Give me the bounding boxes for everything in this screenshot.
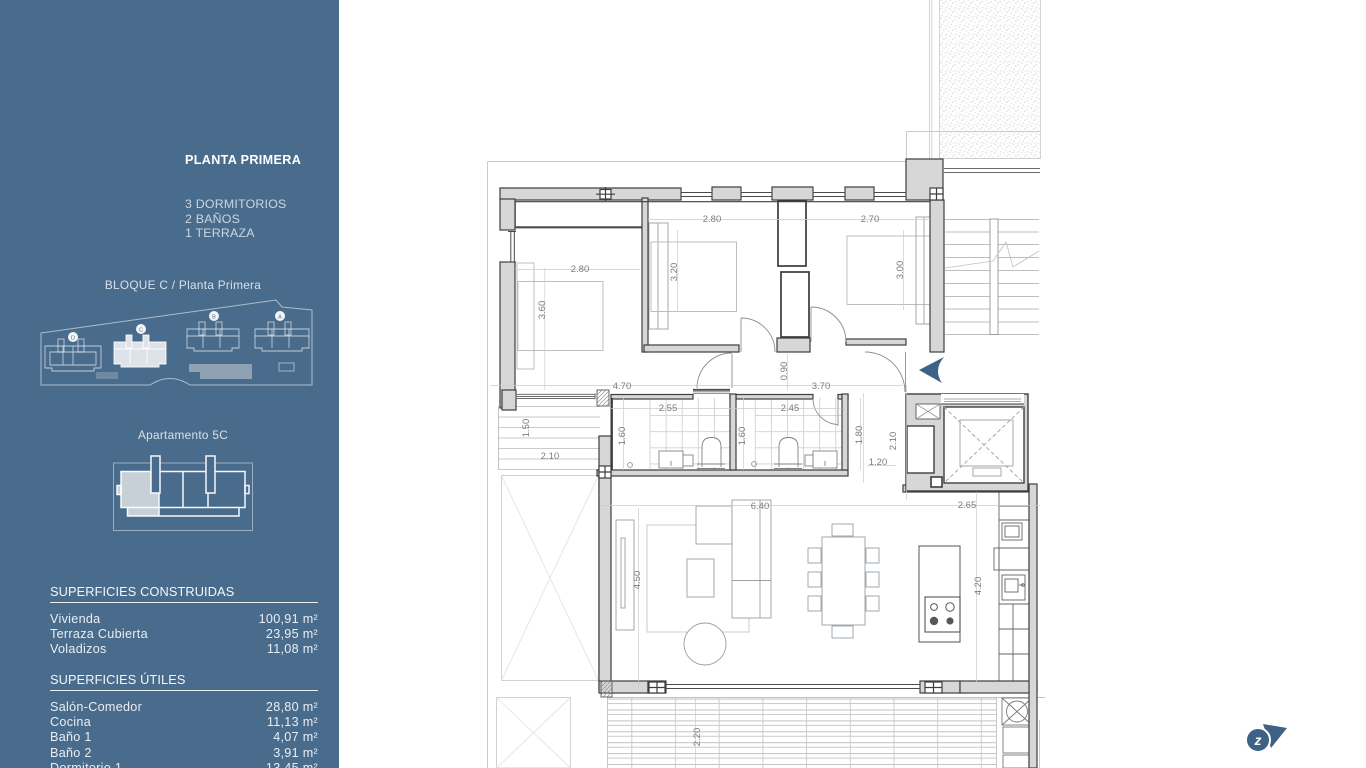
svg-text:2.20: 2.20 (692, 728, 703, 747)
svg-text:4.50: 4.50 (632, 571, 643, 590)
svg-text:2.55: 2.55 (659, 403, 678, 414)
svg-text:6.40: 6.40 (751, 501, 770, 512)
svg-text:0.90: 0.90 (779, 362, 790, 381)
svg-text:3.00: 3.00 (895, 261, 906, 280)
svg-text:3.70: 3.70 (812, 381, 831, 392)
svg-text:2.80: 2.80 (571, 264, 590, 275)
svg-text:2.10: 2.10 (541, 451, 560, 462)
svg-text:2.65: 2.65 (958, 500, 977, 511)
svg-text:1.60: 1.60 (617, 427, 628, 446)
svg-text:4.20: 4.20 (973, 577, 984, 596)
svg-text:z: z (1254, 732, 1262, 748)
svg-text:1.80: 1.80 (854, 426, 865, 445)
svg-text:2.10: 2.10 (888, 432, 899, 451)
svg-text:3.60: 3.60 (537, 301, 548, 320)
svg-text:2.70: 2.70 (861, 214, 880, 225)
svg-text:1.60: 1.60 (737, 427, 748, 446)
svg-text:3.20: 3.20 (669, 263, 680, 282)
svg-text:1.20: 1.20 (869, 457, 888, 468)
svg-text:2.45: 2.45 (781, 403, 800, 414)
svg-text:4.70: 4.70 (613, 381, 632, 392)
svg-text:2.80: 2.80 (703, 214, 722, 225)
svg-text:1.50: 1.50 (521, 419, 532, 438)
